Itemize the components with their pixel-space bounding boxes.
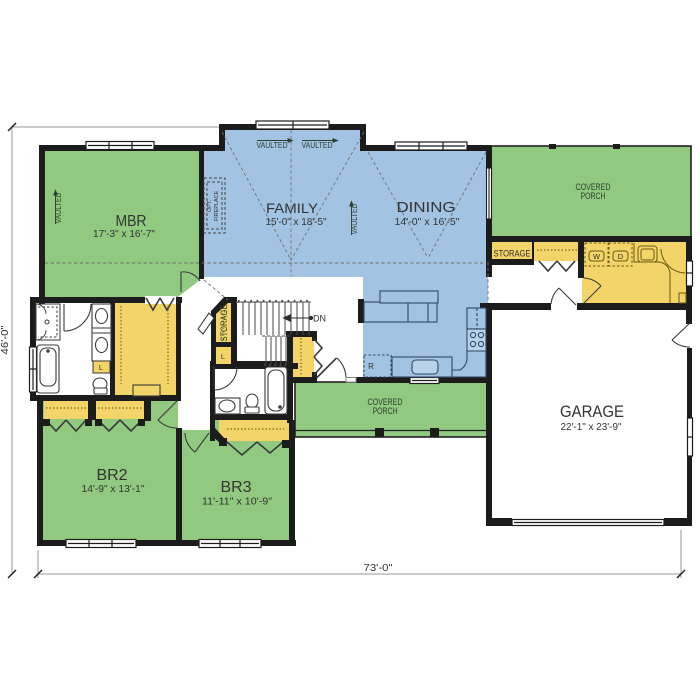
svg-text:W: W bbox=[593, 252, 601, 261]
svg-text:STORAGE: STORAGE bbox=[219, 305, 229, 342]
svg-text:GARAGE: GARAGE bbox=[560, 402, 624, 421]
svg-text:STORAGE: STORAGE bbox=[494, 249, 531, 259]
svg-text:17'-3" x 16'-7": 17'-3" x 16'-7" bbox=[93, 228, 155, 240]
svg-text:D: D bbox=[618, 252, 624, 261]
svg-text:R: R bbox=[368, 362, 374, 371]
svg-text:FAMILY: FAMILY bbox=[266, 201, 318, 216]
svg-text:73'-0": 73'-0" bbox=[364, 562, 393, 574]
svg-text:DINING: DINING bbox=[397, 200, 456, 216]
svg-text:DN: DN bbox=[313, 314, 326, 324]
svg-text:14'-0" x 16'-5": 14'-0" x 16'-5" bbox=[395, 216, 460, 228]
svg-text:VAULTED: VAULTED bbox=[54, 192, 63, 223]
svg-text:VAULTED: VAULTED bbox=[350, 203, 359, 234]
svg-text:22'-1" x 23'-9": 22'-1" x 23'-9" bbox=[561, 421, 622, 433]
svg-text:PORCH: PORCH bbox=[373, 406, 398, 416]
svg-text:BR2: BR2 bbox=[97, 467, 128, 484]
svg-text:FIREPLACE: FIREPLACE bbox=[214, 190, 220, 221]
svg-text:L: L bbox=[99, 363, 103, 372]
svg-text:15'-0" x 18'-5": 15'-0" x 18'-5" bbox=[266, 216, 327, 228]
svg-text:VAULTED: VAULTED bbox=[257, 141, 288, 150]
svg-text:14'-9" x 13'-1": 14'-9" x 13'-1" bbox=[82, 484, 145, 495]
svg-text:11'-11" x 10'-9": 11'-11" x 10'-9" bbox=[202, 497, 272, 508]
svg-text:OPT.: OPT. bbox=[207, 199, 213, 212]
svg-text:PORCH: PORCH bbox=[581, 191, 606, 201]
svg-text:BR3: BR3 bbox=[221, 479, 252, 496]
svg-text:L: L bbox=[221, 352, 225, 361]
svg-text:46'-0": 46'-0" bbox=[0, 325, 11, 354]
svg-text:VAULTED: VAULTED bbox=[302, 141, 333, 150]
